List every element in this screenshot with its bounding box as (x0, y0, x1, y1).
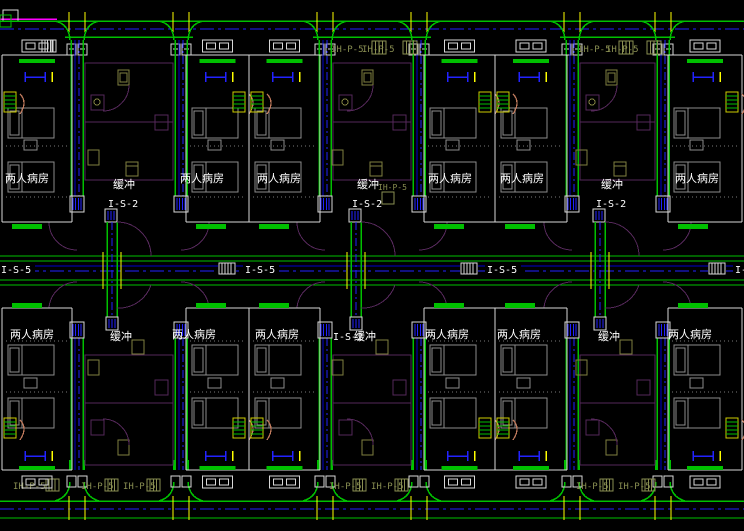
window-sill (442, 466, 478, 470)
ward-room-label: 两人病房 (675, 171, 719, 185)
duct-label: IH-P-5 (378, 183, 407, 192)
window-sill (687, 466, 723, 470)
corridor-duct-label: I-S-5 (735, 265, 744, 276)
duct-label: IH-P-5 (13, 482, 46, 492)
window-sill (200, 59, 236, 63)
ward-room-label: 两人病房 (425, 327, 469, 341)
buffer-room-label: 缓冲 (113, 177, 135, 191)
ward-room-label: 两人病房 (668, 327, 712, 341)
window-sill (19, 59, 55, 63)
ward-room-label: 两人病房 (255, 327, 299, 341)
radiator-sill (678, 303, 708, 308)
radiator-sill (434, 224, 464, 229)
window-sill (200, 466, 236, 470)
branch-duct-label: I-S-2 (596, 199, 626, 210)
ward-room-label: 两人病房 (428, 171, 472, 185)
radiator-sill (12, 224, 42, 229)
buffer-room-label: 缓冲 (357, 177, 379, 191)
label-mask (460, 262, 478, 275)
ward-room-label: 两人病房 (10, 327, 54, 341)
corridor-duct-label: I-S-5 (245, 265, 275, 276)
window-sill (442, 59, 478, 63)
corridor-duct-label-group: I-S-5 (0, 262, 35, 276)
duct-label: IH-P-5 (606, 45, 639, 55)
label-mask (708, 262, 726, 275)
radiator-sill (259, 224, 289, 229)
duct-label: IH-P-5 (331, 45, 364, 55)
buffer-room-label: 缓冲 (354, 329, 376, 343)
ward-room-label: 两人病房 (172, 327, 216, 341)
branch-duct-label: I-S-2 (352, 199, 382, 210)
radiator-sill (678, 224, 708, 229)
floorplan-drawing: IH-P-5I-S-5I-S-5I-S-5I-S-5IH-P-5IH-P-5缓冲… (0, 0, 744, 531)
corridor-duct-label: I-S-5 (487, 265, 517, 276)
window-sill (513, 466, 549, 470)
branch-duct-label: I-S-2 (108, 199, 138, 210)
radiator-sill (505, 224, 535, 229)
buffer-room-label: 缓冲 (601, 177, 623, 191)
ward-room-label: 两人病房 (180, 171, 224, 185)
window-sill (19, 466, 55, 470)
radiator-sill (505, 303, 535, 308)
corridor-duct-label: I-S-5 (1, 265, 31, 276)
ward-room-label: 两人病房 (497, 327, 541, 341)
duct-label: IH-P-5 (362, 45, 395, 55)
ward-room-label: 两人病房 (500, 171, 544, 185)
cad-floorplan-viewport[interactable]: IH-P-5I-S-5I-S-5I-S-5I-S-5IH-P-5IH-P-5缓冲… (0, 0, 744, 531)
window-sill (687, 59, 723, 63)
window-sill (267, 59, 303, 63)
buffer-room-label: 缓冲 (110, 329, 132, 343)
corridor-duct-label-group: I-S-5 (460, 262, 521, 276)
label-mask (218, 262, 236, 275)
buffer-room-label: 缓冲 (598, 329, 620, 343)
corridor-duct-label-group: I-S-5 (218, 262, 279, 276)
radiator-sill (196, 303, 226, 308)
radiator-sill (196, 224, 226, 229)
ward-room-label: 两人病房 (257, 171, 301, 185)
window-sill (513, 59, 549, 63)
radiator-sill (259, 303, 289, 308)
corridor-duct-label-group: I-S-5 (708, 262, 744, 276)
ward-room-label: 两人病房 (5, 171, 49, 185)
window-sill (267, 466, 303, 470)
radiator-sill (434, 303, 464, 308)
radiator-sill (12, 303, 42, 308)
